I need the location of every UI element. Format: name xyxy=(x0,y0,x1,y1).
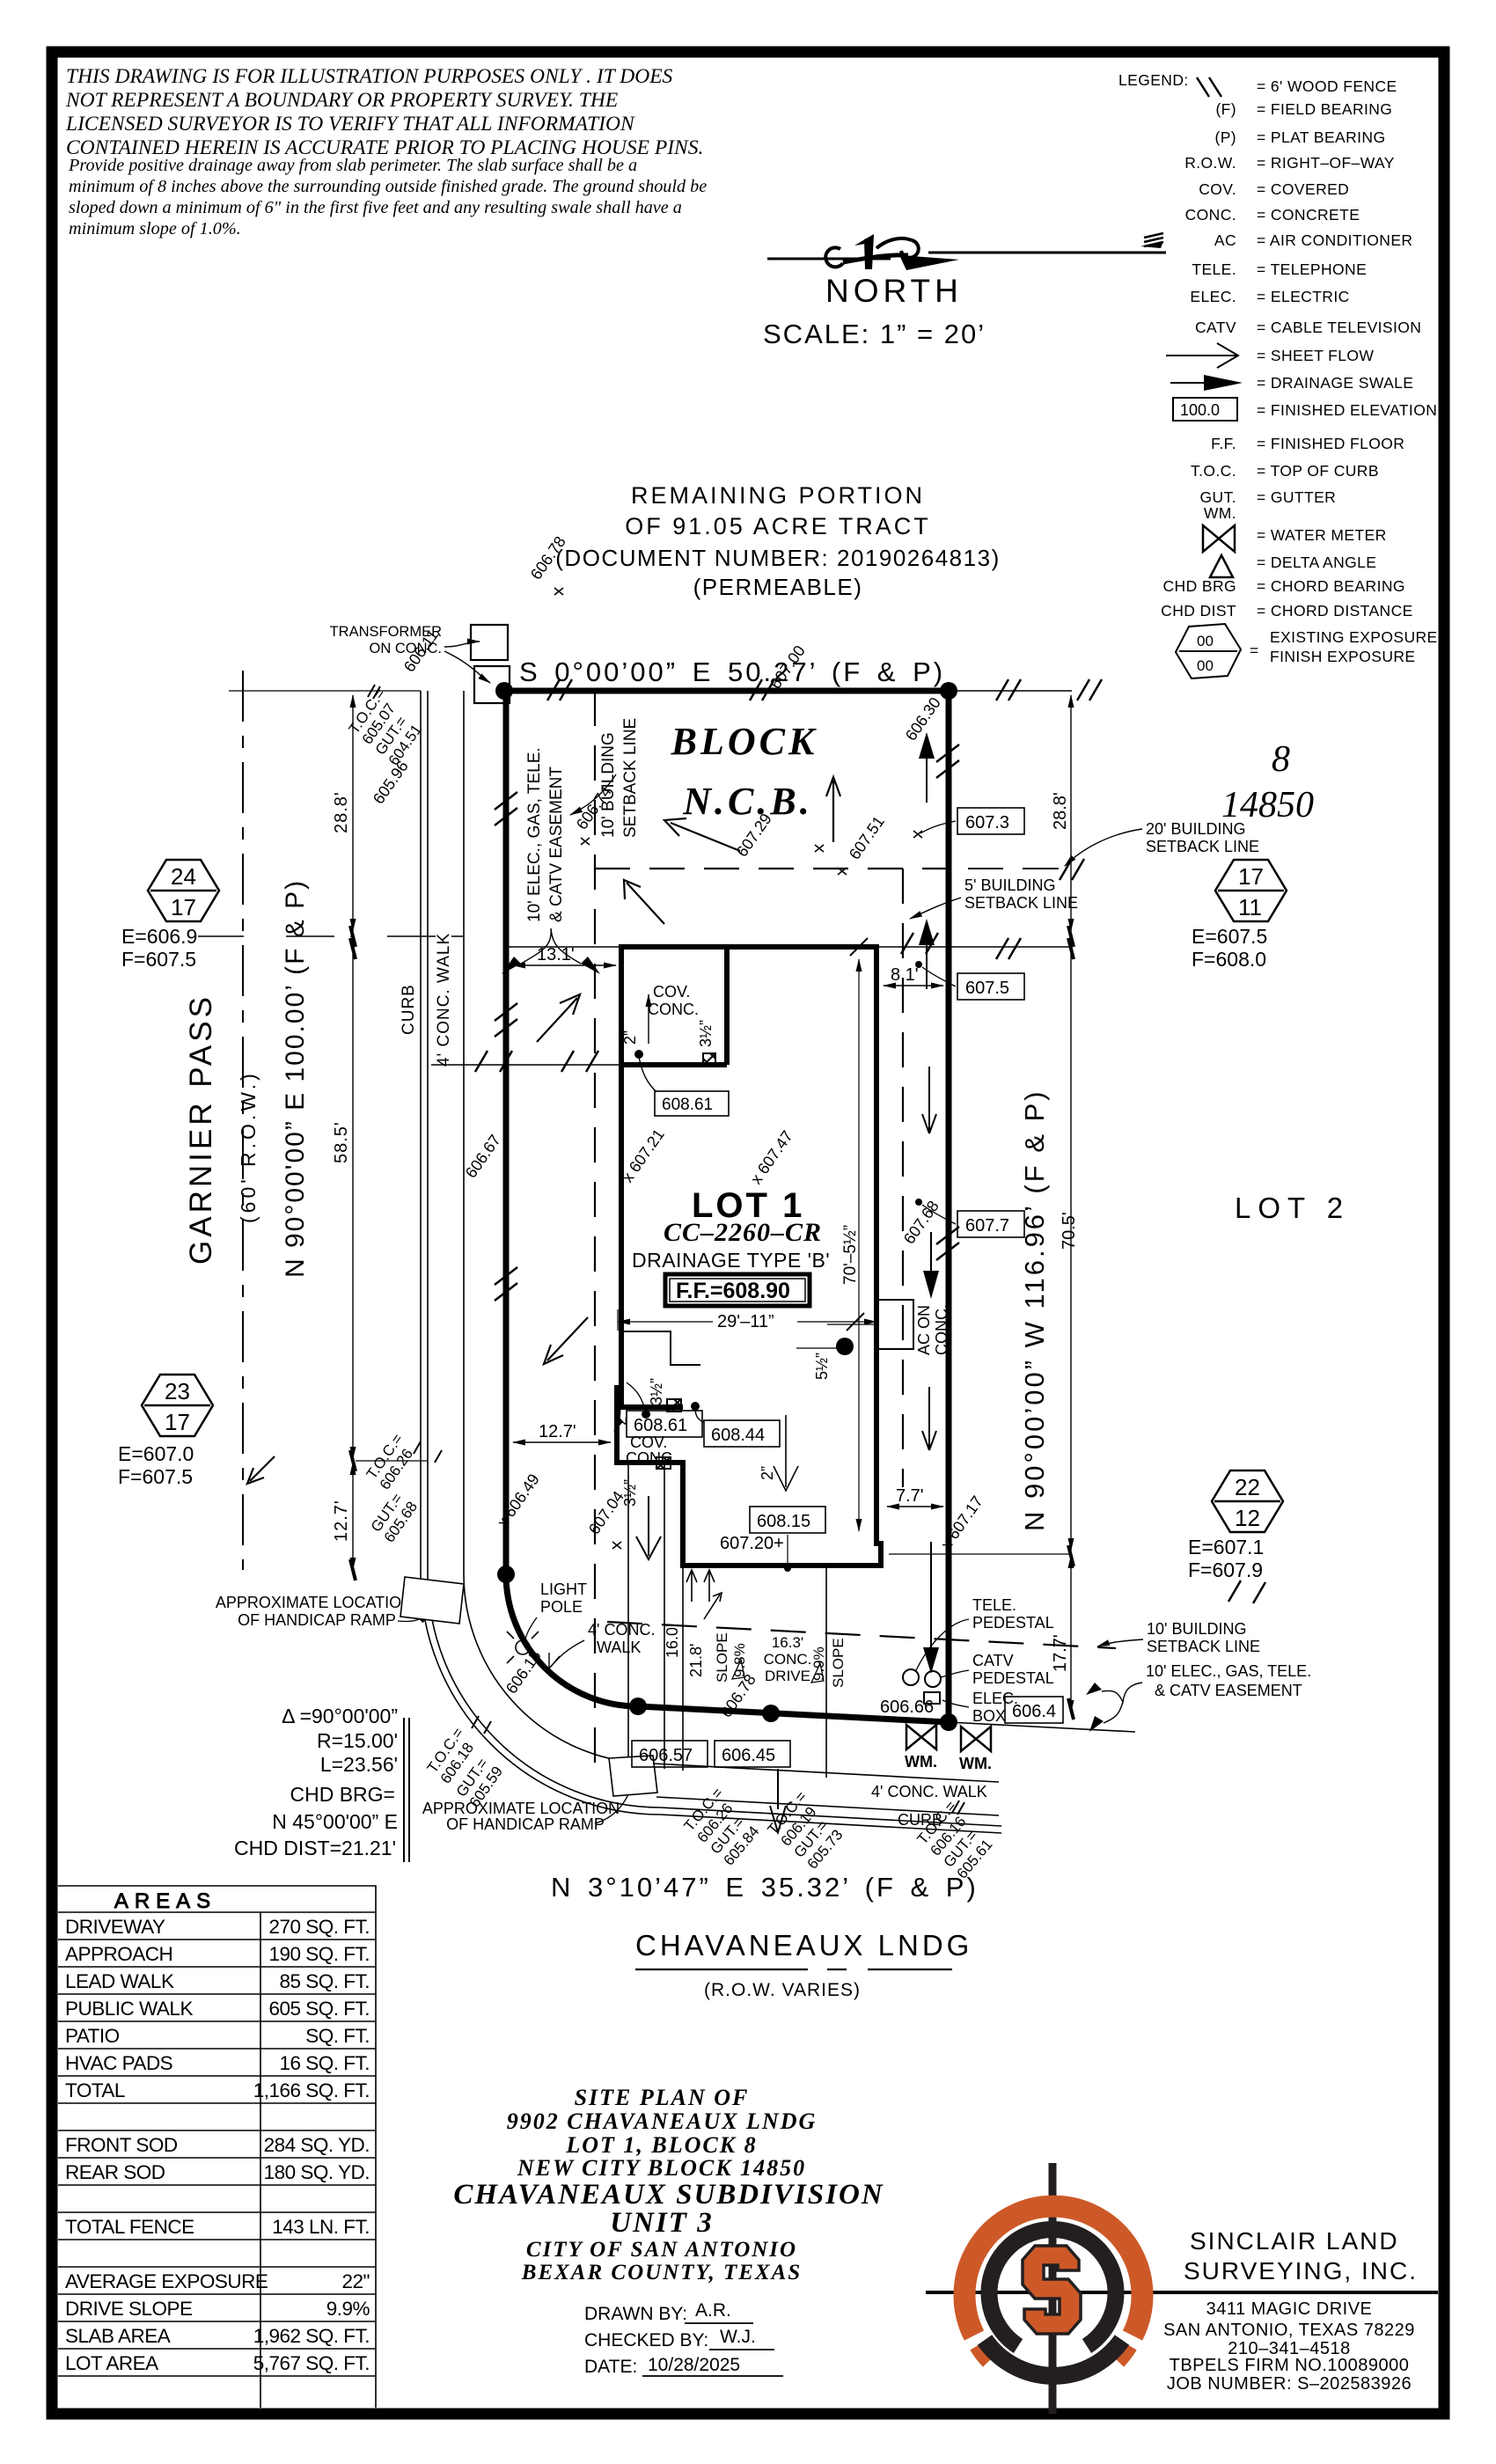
svg-text:PATIO: PATIO xyxy=(65,2025,120,2047)
svg-text:PUBLIC WALK: PUBLIC WALK xyxy=(65,1998,193,2020)
svg-text:= TELEPHONE: = TELEPHONE xyxy=(1257,260,1367,278)
svg-text:CATV: CATV xyxy=(1195,319,1236,336)
svg-text:12: 12 xyxy=(1235,1505,1260,1531)
svg-text:= FINISHED ELEVATION: = FINISHED ELEVATION xyxy=(1257,401,1437,419)
svg-text:CATV: CATV xyxy=(972,1652,1014,1669)
svg-text:TBPELS FIRM NO.10089000: TBPELS FIRM NO.10089000 xyxy=(1170,2356,1410,2375)
svg-text:COV.: COV. xyxy=(1199,180,1236,198)
svg-text:NOT REPRESENT A BOUNDARY OR PR: NOT REPRESENT A BOUNDARY OR PROPERTY SUR… xyxy=(65,89,618,112)
svg-text:WM.: WM. xyxy=(1204,504,1236,522)
svg-text:9902 CHAVANEAUX LNDG: 9902 CHAVANEAUX LNDG xyxy=(507,2108,818,2134)
svg-text:EXISTING EXPOSURE: EXISTING EXPOSURE xyxy=(1270,628,1438,646)
svg-text:N 45°00'00” E: N 45°00'00” E xyxy=(272,1810,398,1833)
svg-text:= TOP OF CURB: = TOP OF CURB xyxy=(1257,462,1379,480)
svg-text:16.0': 16.0' xyxy=(664,1624,681,1658)
svg-text:CC–2260–CR: CC–2260–CR xyxy=(664,1218,822,1247)
svg-text:T.O.C.: T.O.C. xyxy=(1191,462,1236,480)
svg-text:12.7': 12.7' xyxy=(539,1422,576,1441)
svg-text:LIGHT: LIGHT xyxy=(540,1580,587,1598)
svg-text:SQ. FT.: SQ. FT. xyxy=(305,2025,370,2047)
svg-text:AC: AC xyxy=(1214,231,1236,249)
svg-text:F=607.5: F=607.5 xyxy=(118,1465,193,1488)
svg-text:UNIT 3: UNIT 3 xyxy=(610,2207,713,2239)
svg-text:00: 00 xyxy=(1197,633,1214,649)
svg-text:WM.: WM. xyxy=(905,1753,937,1771)
svg-text:DRAINAGE TYPE 'B': DRAINAGE TYPE 'B' xyxy=(632,1249,830,1272)
svg-text:APPROXIMATE LOCATION: APPROXIMATE LOCATION xyxy=(422,1800,620,1817)
svg-text:CONC.: CONC. xyxy=(764,1651,812,1668)
svg-text:= WATER METER: = WATER METER xyxy=(1257,526,1387,544)
svg-text:= FINISHED FLOOR: = FINISHED FLOOR xyxy=(1257,435,1404,452)
svg-text:10/28/2025: 10/28/2025 xyxy=(648,2355,740,2375)
svg-text:21.8': 21.8' xyxy=(687,1644,705,1677)
svg-text:A.R.: A.R. xyxy=(695,2300,731,2321)
svg-text:DRIVE SLOPE: DRIVE SLOPE xyxy=(65,2298,193,2320)
svg-text:NORTH: NORTH xyxy=(825,273,963,309)
svg-text:607.5: 607.5 xyxy=(965,979,1009,998)
svg-text:E=607.1: E=607.1 xyxy=(1188,1536,1264,1558)
svg-text:N 3°10’47” E 35.32’ (F &: N 3°10’47” E 35.32’ (F & P) xyxy=(551,1872,979,1903)
svg-text:2”: 2” xyxy=(621,1030,639,1045)
svg-text:APPROXIMATE LOCATION: APPROXIMATE LOCATION xyxy=(216,1594,413,1611)
svg-text:TELE.: TELE. xyxy=(1192,260,1236,278)
svg-text:N.C.B.: N.C.B. xyxy=(682,780,812,823)
svg-text:& CATV EASEMENT: & CATV EASEMENT xyxy=(547,766,566,922)
svg-text:SURVEYING, INC.: SURVEYING, INC. xyxy=(1184,2257,1418,2284)
svg-text:607.3: 607.3 xyxy=(965,813,1009,832)
svg-text:SLOPE: SLOPE xyxy=(830,1638,847,1688)
svg-text:SLAB AREA: SLAB AREA xyxy=(65,2325,171,2347)
svg-text:10' ELEC., GAS, TELE.: 10' ELEC., GAS, TELE. xyxy=(525,747,544,922)
svg-text:APPROACH: APPROACH xyxy=(65,1943,172,1965)
svg-text:F=608.0: F=608.0 xyxy=(1192,948,1266,971)
svg-text:AVERAGE EXPOSURE: AVERAGE EXPOSURE xyxy=(65,2270,268,2292)
svg-text:sloped down a minimum of 6" in: sloped down a minimum of 6" in the first… xyxy=(69,198,682,217)
svg-text:CHD BRG=: CHD BRG= xyxy=(290,1783,396,1806)
svg-text:3½”: 3½” xyxy=(697,1020,715,1047)
svg-text:= GUTTER: = GUTTER xyxy=(1257,488,1336,506)
svg-text:= CABLE TELEVISION: = CABLE TELEVISION xyxy=(1257,319,1421,336)
svg-text:CITY OF SAN ANTONIO: CITY OF SAN ANTONIO xyxy=(526,2238,797,2262)
svg-text:TOTAL: TOTAL xyxy=(65,2079,125,2101)
svg-text:minimum of 8 inches above the: minimum of 8 inches above the surroundin… xyxy=(69,177,707,196)
svg-text:SETBACK LINE: SETBACK LINE xyxy=(621,718,640,838)
svg-text:DRIVE: DRIVE xyxy=(765,1668,810,1684)
svg-text:N 90°00’00” W 116.96’ (F: N 90°00’00” W 116.96’ (F & P) xyxy=(1019,1089,1050,1531)
svg-text:REAR SOD: REAR SOD xyxy=(65,2161,165,2183)
svg-text:LICENSED SURVEYOR IS TO VERIFY: LICENSED SURVEYOR IS TO VERIFY THAT ALL … xyxy=(65,113,635,136)
svg-text:BOX: BOX xyxy=(972,1707,1006,1725)
svg-text:COV.: COV. xyxy=(630,1434,667,1451)
svg-text:70.5': 70.5' xyxy=(1060,1212,1079,1250)
svg-text:CHD DIST=21.21': CHD DIST=21.21' xyxy=(234,1837,396,1859)
svg-text:POLE: POLE xyxy=(540,1598,583,1616)
svg-text:17: 17 xyxy=(171,894,196,920)
svg-text:= AIR CONDITIONER: = AIR CONDITIONER xyxy=(1257,231,1412,249)
svg-text:GARNIER PASS: GARNIER PASS xyxy=(184,994,218,1265)
svg-text:3411 MAGIC DRIVE: 3411 MAGIC DRIVE xyxy=(1206,2299,1373,2319)
svg-text:BLOCK: BLOCK xyxy=(671,720,818,763)
svg-text:CHECKED BY:: CHECKED BY: xyxy=(584,2330,708,2350)
svg-text:= COVERED: = COVERED xyxy=(1257,180,1349,198)
svg-text:(P): (P) xyxy=(1214,128,1236,146)
svg-text:SETBACK LINE: SETBACK LINE xyxy=(1147,1638,1260,1655)
svg-text:SINCLAIR LAND: SINCLAIR LAND xyxy=(1190,2227,1399,2255)
svg-text:100.0: 100.0 xyxy=(1180,401,1220,419)
svg-text:SLOPE: SLOPE xyxy=(714,1632,730,1683)
svg-text:606.66: 606.66 xyxy=(880,1698,934,1717)
svg-text:9.9%: 9.9% xyxy=(326,2298,370,2320)
svg-text:DRAWN BY:: DRAWN BY: xyxy=(584,2304,687,2324)
svg-text:CHAVANEAUX LNDG: CHAVANEAUX LNDG xyxy=(635,1929,972,1962)
svg-text:WALK: WALK xyxy=(597,1639,641,1656)
svg-text:REMAINING PORTION: REMAINING PORTION xyxy=(631,482,925,509)
svg-text:LEGEND:: LEGEND: xyxy=(1118,71,1189,89)
svg-text:LOT AREA: LOT AREA xyxy=(65,2352,158,2374)
svg-text:13.1': 13.1' xyxy=(537,945,575,964)
svg-text:CONC.: CONC. xyxy=(648,1001,699,1018)
svg-text:TELE.: TELE. xyxy=(972,1596,1016,1614)
svg-text:70'–5½”: 70'–5½” xyxy=(841,1225,860,1285)
svg-text:9.9%: 9.9% xyxy=(810,1646,827,1681)
svg-text:11: 11 xyxy=(1238,894,1262,920)
svg-text:FRONT SOD: FRONT SOD xyxy=(65,2134,178,2156)
svg-text:LOT 1, BLOCK 8: LOT 1, BLOCK 8 xyxy=(565,2132,757,2158)
svg-text:= PLAT BEARING: = PLAT BEARING xyxy=(1257,128,1385,146)
svg-text:5½”: 5½” xyxy=(813,1353,831,1380)
svg-text:24: 24 xyxy=(171,863,196,890)
svg-text:2”: 2” xyxy=(612,1412,630,1426)
svg-text:PEDESTAL: PEDESTAL xyxy=(972,1669,1054,1687)
svg-text:R.O.W.: R.O.W. xyxy=(1184,154,1236,172)
svg-text:L=23.56': L=23.56' xyxy=(320,1753,398,1776)
svg-text:OF HANDICAP RAMP: OF HANDICAP RAMP xyxy=(446,1815,605,1833)
svg-text:8: 8 xyxy=(1272,739,1290,780)
svg-text:4' CONC.: 4' CONC. xyxy=(588,1621,655,1639)
svg-text:THIS DRAWING IS FOR ILLUSTRATI: THIS DRAWING IS FOR ILLUSTRATION PURPOSE… xyxy=(66,65,673,88)
svg-text:N 90°00'00” E 100.00’ (F &: N 90°00'00” E 100.00’ (F & P) xyxy=(281,879,310,1278)
svg-text:SITE PLAN OF: SITE PLAN OF xyxy=(575,2085,750,2110)
svg-text:17: 17 xyxy=(1238,863,1264,890)
svg-text:Δ =90°00'00”: Δ =90°00'00” xyxy=(282,1705,398,1727)
svg-text:10' BUILDING: 10' BUILDING xyxy=(1147,1620,1246,1638)
svg-text:HVAC PADS: HVAC PADS xyxy=(65,2052,172,2074)
svg-text:22: 22 xyxy=(1235,1474,1260,1500)
svg-text:(PERMEABLE): (PERMEABLE) xyxy=(693,574,863,600)
svg-text:16.3': 16.3' xyxy=(772,1634,803,1651)
svg-text:CURB: CURB xyxy=(400,984,418,1035)
svg-text:190 SQ. FT.: 190 SQ. FT. xyxy=(268,1943,370,1965)
svg-text:CONC.: CONC. xyxy=(1185,206,1236,224)
svg-text:CHD DIST: CHD DIST xyxy=(1161,602,1236,620)
svg-text:SETBACK LINE: SETBACK LINE xyxy=(1146,838,1259,855)
svg-text:608.61: 608.61 xyxy=(634,1416,687,1435)
svg-text:W.J.: W.J. xyxy=(720,2327,756,2347)
svg-text:608.15: 608.15 xyxy=(757,1512,810,1531)
svg-text:143 LN. FT.: 143 LN. FT. xyxy=(272,2216,370,2238)
svg-text:16 SQ. FT.: 16 SQ. FT. xyxy=(279,2052,370,2074)
svg-text:FINISH EXPOSURE: FINISH EXPOSURE xyxy=(1270,648,1415,665)
svg-text:E=607.5: E=607.5 xyxy=(1192,925,1267,948)
svg-text:= FIELD BEARING: = FIELD BEARING xyxy=(1257,100,1392,118)
svg-text:minimum slope of 1.0%.: minimum slope of 1.0%. xyxy=(69,219,241,238)
svg-text:= CONCRETE: = CONCRETE xyxy=(1257,206,1360,224)
svg-text:SAN ANTONIO, TEXAS 78229: SAN ANTONIO, TEXAS 78229 xyxy=(1163,2321,1415,2340)
svg-text:OF HANDICAP RAMP: OF HANDICAP RAMP xyxy=(238,1611,396,1629)
svg-text:WM.: WM. xyxy=(959,1755,992,1772)
svg-text:12.7': 12.7' xyxy=(332,1500,351,1542)
svg-text:F=607.9: F=607.9 xyxy=(1188,1558,1263,1581)
svg-text:LOT 2: LOT 2 xyxy=(1235,1192,1350,1224)
svg-text:E=607.0: E=607.0 xyxy=(118,1442,194,1465)
svg-text:606.4: 606.4 xyxy=(1012,1702,1056,1721)
svg-text:(R.O.W. VARIES): (R.O.W. VARIES) xyxy=(704,1980,861,2000)
svg-text:= DELTA ANGLE: = DELTA ANGLE xyxy=(1257,554,1376,571)
svg-text:28.8': 28.8' xyxy=(1051,792,1070,830)
svg-text:29'–11”: 29'–11” xyxy=(717,1312,774,1331)
svg-text:= RIGHT–OF–WAY: = RIGHT–OF–WAY xyxy=(1257,154,1395,172)
svg-text:ELEC.: ELEC. xyxy=(972,1690,1018,1707)
svg-text:608.44: 608.44 xyxy=(711,1426,765,1445)
svg-text:5,767 SQ. FT.: 5,767 SQ. FT. xyxy=(253,2352,370,2374)
svg-text:AREAS: AREAS xyxy=(114,1889,216,1913)
svg-text:ELEC.: ELEC. xyxy=(1190,288,1236,305)
svg-text:SETBACK LINE: SETBACK LINE xyxy=(964,894,1078,912)
svg-text:F.F.=608.90: F.F.=608.90 xyxy=(676,1279,790,1303)
svg-text:LEAD WALK: LEAD WALK xyxy=(65,1970,174,1992)
svg-text:(F): (F) xyxy=(1215,100,1236,118)
svg-text:COV.: COV. xyxy=(653,983,690,1001)
svg-text:NEW CITY BLOCK 14850: NEW CITY BLOCK 14850 xyxy=(517,2155,806,2181)
svg-text:S 0°00’00” E 50.27’ (F &: S 0°00’00” E 50.27’ (F & P) xyxy=(519,656,945,687)
svg-text:607.20+: 607.20+ xyxy=(720,1534,784,1553)
svg-text:F.F.: F.F. xyxy=(1211,435,1236,452)
svg-text:CHAVANEAUX SUBDIVISION: CHAVANEAUX SUBDIVISION xyxy=(453,2179,884,2211)
svg-text:JOB NUMBER: S–202583926: JOB NUMBER: S–202583926 xyxy=(1167,2374,1412,2394)
svg-text:(60' R.O.W.): (60' R.O.W.) xyxy=(237,1070,260,1223)
svg-text:4' CONC. WALK: 4' CONC. WALK xyxy=(871,1783,987,1800)
svg-text:605 SQ. FT.: 605 SQ. FT. xyxy=(268,1998,370,2020)
svg-text:2”: 2” xyxy=(759,1466,776,1480)
svg-text:DATE:: DATE: xyxy=(584,2357,637,2377)
svg-text:= CHORD DISTANCE: = CHORD DISTANCE xyxy=(1257,602,1413,620)
svg-text:R=15.00': R=15.00' xyxy=(317,1729,398,1752)
svg-text:58.5': 58.5' xyxy=(332,1121,351,1163)
svg-text:AC ON: AC ON xyxy=(915,1305,933,1355)
svg-text:10' ELEC., GAS, TELE.: 10' ELEC., GAS, TELE. xyxy=(1146,1662,1311,1680)
svg-text:180 SQ. YD.: 180 SQ. YD. xyxy=(264,2161,370,2183)
svg-text:OF 91.05 ACRE TRACT: OF 91.05 ACRE TRACT xyxy=(625,513,931,539)
svg-text:607.7: 607.7 xyxy=(965,1216,1009,1236)
svg-text:& CATV EASEMENT: & CATV EASEMENT xyxy=(1155,1682,1302,1699)
svg-text:7.7': 7.7' xyxy=(896,1486,924,1506)
svg-text:BEXAR COUNTY, TEXAS: BEXAR COUNTY, TEXAS xyxy=(521,2261,802,2284)
svg-text:5' BUILDING: 5' BUILDING xyxy=(964,876,1055,894)
svg-text:284 SQ. YD.: 284 SQ. YD. xyxy=(264,2134,370,2156)
svg-text:E=606.9: E=606.9 xyxy=(121,925,197,948)
svg-text:PEDESTAL: PEDESTAL xyxy=(972,1614,1054,1632)
svg-text:Provide positive drainage away: Provide positive drainage away from slab… xyxy=(68,156,637,175)
svg-text:270 SQ. FT.: 270 SQ. FT. xyxy=(268,1916,370,1938)
svg-text:CONC.: CONC. xyxy=(933,1304,950,1355)
svg-text:1,166 SQ. FT.: 1,166 SQ. FT. xyxy=(253,2079,370,2101)
svg-text:CHD BRG: CHD BRG xyxy=(1163,577,1237,595)
svg-text:28.8': 28.8' xyxy=(332,791,351,833)
svg-text:17.7': 17.7' xyxy=(1051,1634,1070,1672)
svg-text:SCALE: 1” = 20’: SCALE: 1” = 20’ xyxy=(763,319,986,349)
svg-text:DRIVEWAY: DRIVEWAY xyxy=(65,1916,165,1938)
svg-text:8.1': 8.1' xyxy=(891,965,919,985)
svg-text:=: = xyxy=(1250,642,1259,659)
svg-text:TOTAL FENCE: TOTAL FENCE xyxy=(65,2216,194,2238)
svg-text:17: 17 xyxy=(165,1409,190,1435)
svg-text:20' BUILDING: 20' BUILDING xyxy=(1146,820,1245,838)
svg-text:4' CONC. WALK: 4' CONC. WALK xyxy=(435,933,453,1067)
svg-text:F=607.5: F=607.5 xyxy=(121,948,196,971)
svg-text:00: 00 xyxy=(1197,657,1214,674)
svg-text:23: 23 xyxy=(165,1378,190,1404)
svg-text:1,962 SQ. FT.: 1,962 SQ. FT. xyxy=(253,2325,370,2347)
svg-text:= SHEET FLOW: = SHEET FLOW xyxy=(1257,347,1374,364)
svg-text:606.45: 606.45 xyxy=(722,1746,775,1765)
svg-text:85 SQ. FT.: 85 SQ. FT. xyxy=(279,1970,370,1992)
svg-text:= DRAINAGE SWALE: = DRAINAGE SWALE xyxy=(1257,374,1413,392)
svg-text:606.57: 606.57 xyxy=(639,1746,693,1765)
svg-text:= CHORD BEARING: = CHORD BEARING xyxy=(1257,577,1405,595)
svg-text:22": 22" xyxy=(341,2270,370,2292)
svg-text:= 6' WOOD FENCE: = 6' WOOD FENCE xyxy=(1257,77,1397,95)
svg-text:= ELECTRIC: = ELECTRIC xyxy=(1257,288,1350,305)
svg-text:GUT.: GUT. xyxy=(1200,488,1236,506)
svg-text:608.61: 608.61 xyxy=(662,1096,713,1114)
svg-text:(DOCUMENT NUMBER: 2019026481: (DOCUMENT NUMBER: 20190264813) xyxy=(555,545,1000,571)
svg-text:3½”: 3½” xyxy=(648,1378,665,1405)
